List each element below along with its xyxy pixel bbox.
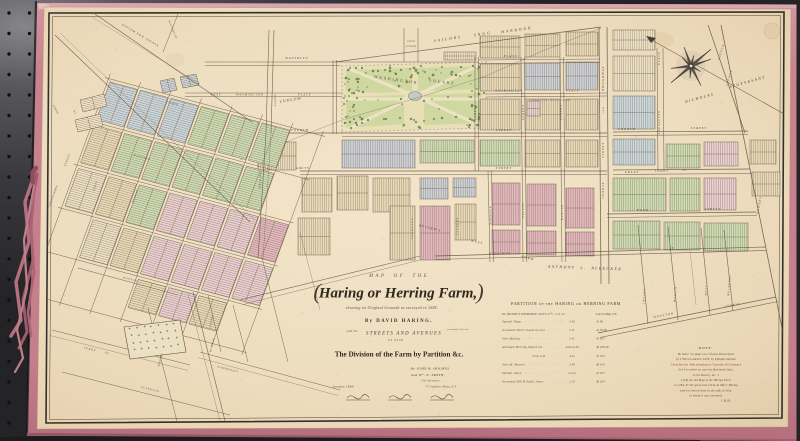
svg-text:41 39 96: 41 39 96 — [596, 328, 607, 332]
svg-text:PARTITION OF THE HARING OR HER: PARTITION OF THE HARING OR HERRING FARM — [511, 302, 621, 306]
svg-text:57 Chambers Place, N.Y.: 57 Chambers Place, N.Y. — [425, 386, 457, 389]
svg-text:AVENUE: AVENUE — [405, 45, 416, 48]
svg-text:FOURTH: FOURTH — [291, 128, 308, 132]
svg-text:STREET: STREET — [474, 104, 477, 120]
svg-text:40 145: 40 145 — [596, 362, 605, 366]
svg-text:BLEECKER: BLEECKER — [489, 252, 511, 255]
svg-text:Haring or Herring Farm,: Haring or Herring Farm, — [318, 286, 477, 302]
svg-text:41 96: 41 96 — [596, 319, 603, 323]
svg-text:PLACE: PLACE — [658, 51, 661, 65]
svg-text:By DAVID HARING.: By DAVID HARING. — [365, 319, 433, 324]
svg-text:STREET: STREET — [496, 128, 513, 132]
svg-text:STREET: STREET — [522, 104, 525, 120]
svg-text:WOOSTER: WOOSTER — [489, 205, 492, 224]
svg-text:January 1869: January 1869 — [332, 385, 353, 389]
svg-text:STREET: STREET — [602, 142, 605, 158]
svg-text:STREET: STREET — [560, 104, 563, 120]
svg-text:I find the old Map of the Hari: I find the old Map of the Haring Farm — [680, 378, 731, 382]
svg-text:John Haring: John Haring — [502, 337, 520, 341]
svg-text:40 193: 40 193 — [596, 380, 605, 384]
svg-text:AND: AND — [602, 106, 605, 114]
svg-text:with the: with the — [346, 329, 358, 333]
svg-text:NOTE.: NOTE. — [699, 346, 714, 350]
svg-text:41 107: 41 107 — [596, 337, 605, 341]
svg-text:STREET: STREET — [705, 207, 722, 211]
svg-text:AVENUE: AVENUE — [274, 94, 277, 107]
svg-text:MERCER: MERCER — [561, 204, 564, 220]
svg-text:Corp lots: Corp lots — [532, 354, 546, 358]
svg-text:40 108 40: 40 108 40 — [596, 345, 609, 349]
svg-text:WASHINGTON: WASHINGTON — [495, 90, 523, 93]
svg-text:2 11: 2 11 — [569, 328, 575, 332]
svg-text:GEORGE: GEORGE — [602, 182, 605, 199]
svg-text:41 104: 41 104 — [596, 354, 605, 358]
svg-text:By JOHN B. HOLMES: By JOHN B. HOLMES — [411, 367, 450, 371]
svg-text:21 BLOCKS FROM 8 THIS MAP IS D: 21 BLOCKS FROM 8 THIS MAP IS DRAWN — [530, 99, 571, 102]
svg-text:Lots 22 40: Lots 22 40 — [564, 345, 579, 349]
svg-text:City Surveyors,: City Surveyors, — [421, 380, 441, 383]
svg-text:GREENE: GREENE — [522, 202, 525, 218]
svg-text:1 40: 1 40 — [569, 362, 575, 366]
svg-text:x 2 41: x 2 41 — [567, 371, 576, 375]
svg-text:AMITY: AMITY — [296, 166, 310, 170]
svg-text:Samuel Jones: Samuel Jones — [502, 371, 522, 375]
svg-text:presently laid out: presently laid out — [446, 328, 468, 331]
svg-text:JONES: JONES — [655, 169, 669, 173]
svg-text:STREET: STREET — [496, 166, 513, 170]
svg-text:FOURTH: FOURTH — [618, 127, 635, 131]
svg-text:41 107: 41 107 — [596, 371, 605, 375]
svg-text:4 41: 4 41 — [569, 354, 575, 358]
svg-text:Grandson Burn't Land lot 222: Grandson Burn't Land lot 222 — [502, 328, 545, 332]
svg-text:to the Bowery 46 : 1: to the Bowery 46 : 1 — [693, 373, 720, 377]
svg-text:J.B.H.: J.B.H. — [721, 399, 732, 403]
svg-text:WAVERLEY: WAVERLEY — [285, 56, 309, 60]
svg-text:THOMPSON: THOMPSON — [411, 217, 414, 239]
svg-text:FIFTH: FIFTH — [407, 40, 415, 43]
svg-text:showing its Original Grounds a: showing its Original Grounds as surveyed… — [346, 306, 438, 310]
svg-text:STREET: STREET — [691, 126, 708, 130]
svg-text:PLACE: PLACE — [504, 54, 518, 58]
svg-text:GREAT: GREAT — [625, 170, 639, 174]
svg-text:Gerardus Hill & Sam'l Jones: Gerardus Hill & Sam'l Jones — [502, 380, 544, 384]
svg-text:2 41: 2 41 — [569, 337, 575, 341]
svg-text:Lots to Map 156: Lots to Map 156 — [595, 312, 617, 316]
svg-text:WASHINGTON: WASHINGTON — [236, 94, 264, 97]
svg-text:LAURENS: LAURENS — [456, 217, 459, 236]
svg-text:STREETS AND AVENUES: STREETS AND AVENUES — [366, 332, 442, 337]
svg-text:MAP OF THE: MAP OF THE — [368, 274, 429, 279]
svg-text:to whom it was conveyed.: to whom it was conveyed. — [689, 394, 722, 398]
svg-text:The Division of the Farm by Pa: The Division of the Farm by Partition &c… — [335, 351, 464, 359]
svg-text:2 13: 2 13 — [569, 380, 575, 384]
svg-text:Samuel Tripp: Samuel Tripp — [502, 319, 521, 323]
svg-text:3 40: 3 40 — [569, 319, 575, 323]
svg-text:BOND: BOND — [637, 208, 649, 212]
svg-text:AS ALSO: AS ALSO — [388, 339, 404, 342]
svg-text:John M. Bowers: John M. Bowers — [502, 362, 526, 366]
svg-text:BROADWAY: BROADWAY — [601, 65, 605, 91]
svg-text:ST: ST — [682, 168, 687, 172]
svg-text:PLACE: PLACE — [566, 90, 580, 93]
svg-text:Abraham Herring Map'd lot: Abraham Herring Map'd lot — [501, 345, 542, 349]
svg-text:LAFAYETTE: LAFAYETTE — [658, 110, 661, 134]
svg-text:ST: ST — [669, 247, 674, 250]
svg-text:WEST: WEST — [210, 94, 221, 97]
